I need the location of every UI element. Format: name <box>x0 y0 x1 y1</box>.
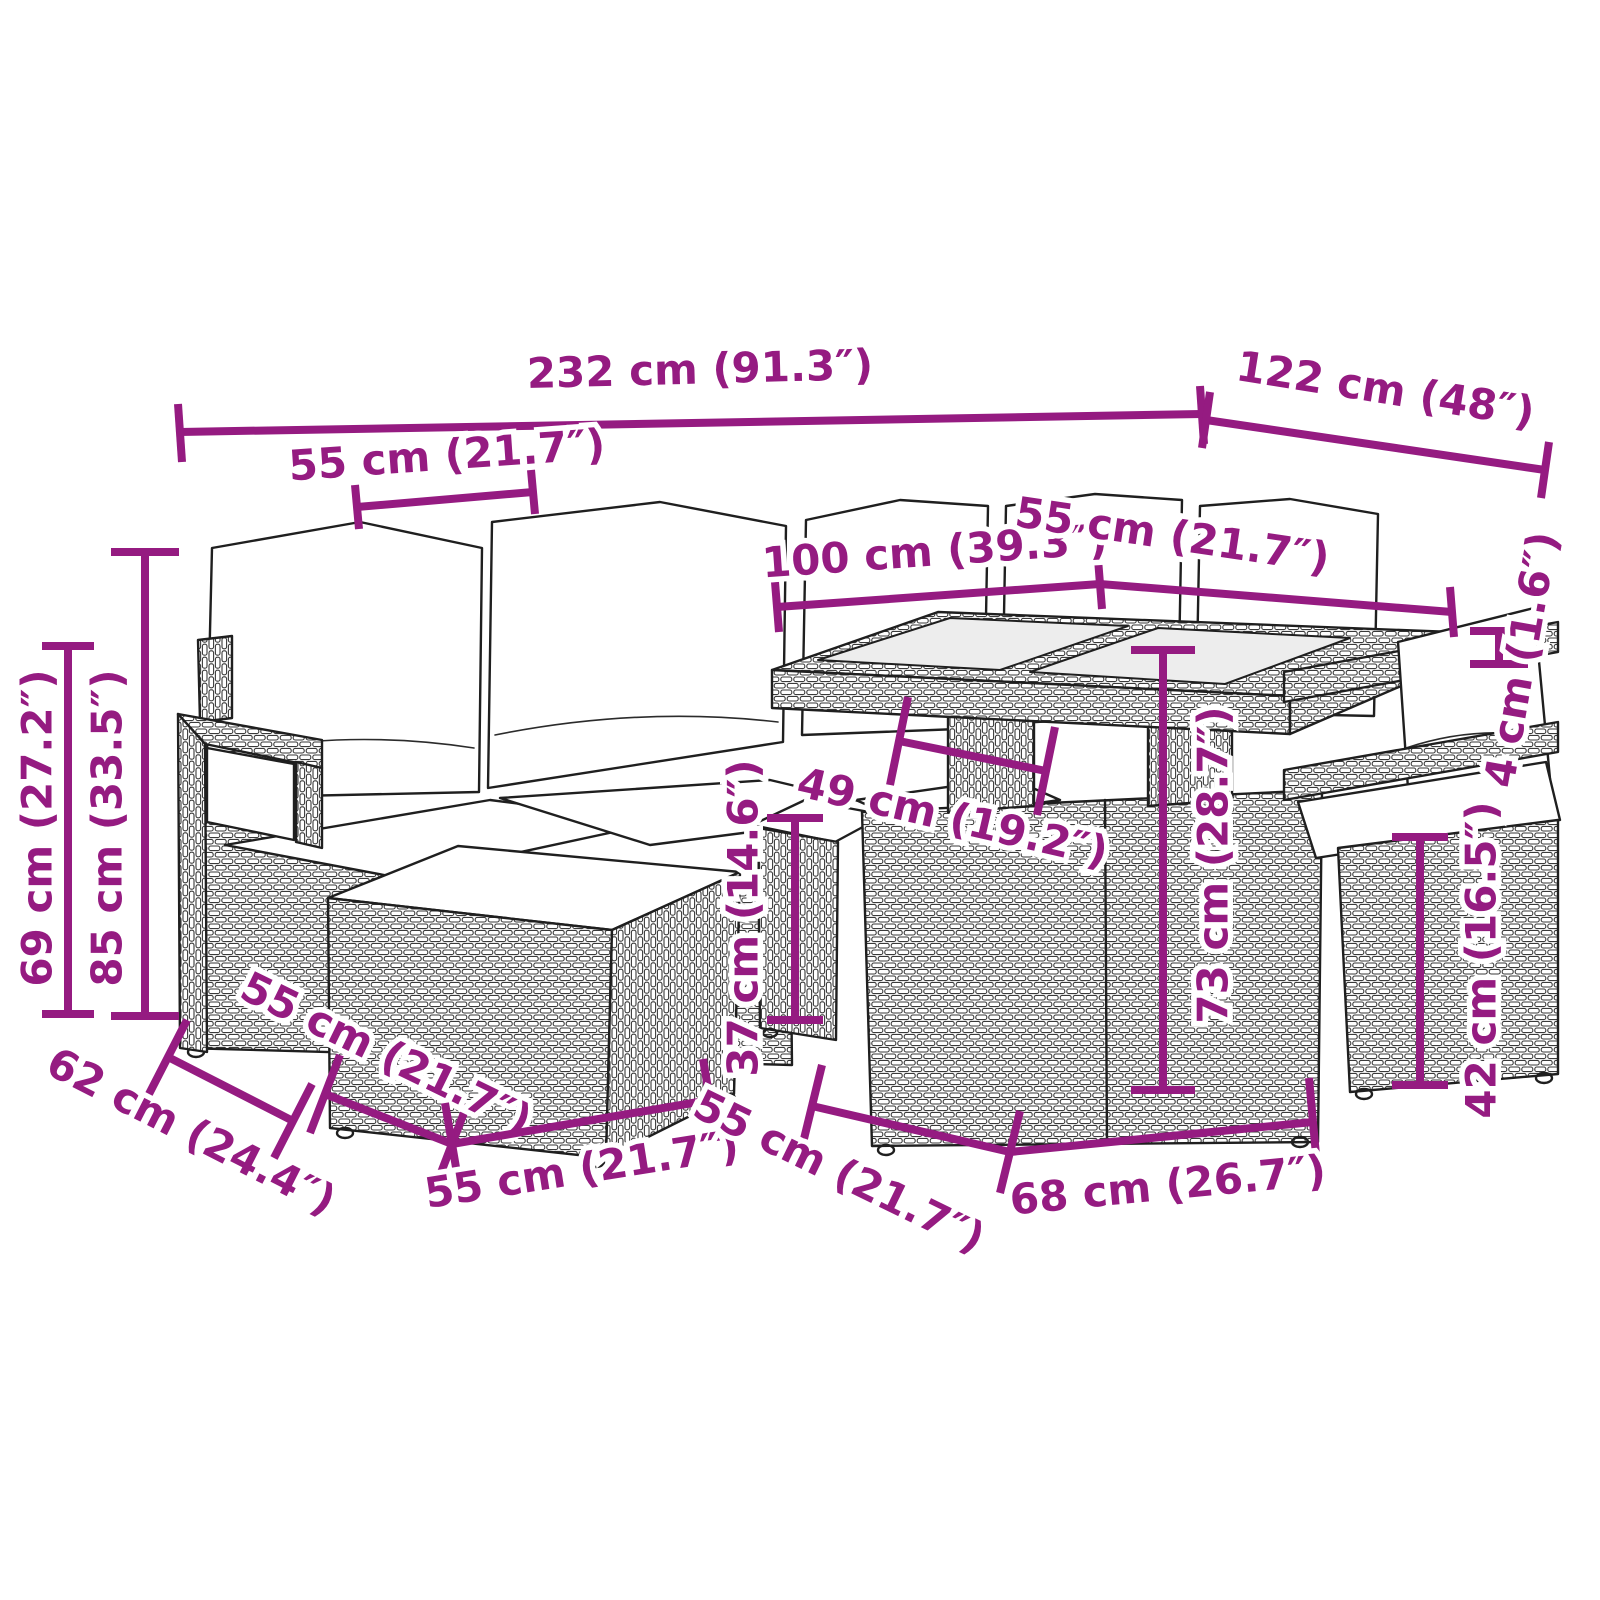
dimension-diagram: 232 cm (91.3″) 122 cm (48″) 55 cm (21.7″… <box>0 0 1600 1600</box>
dim-label-ottoman-height: 37 cm (14.6″) <box>719 759 768 1076</box>
dim-seat-width: 55 cm (21.7″) <box>287 420 607 529</box>
dim-label-overall-width: 232 cm (91.3″) <box>526 340 874 398</box>
dim-label-armrest-height: 69 cm (27.2″) <box>13 669 62 986</box>
dim-overall-depth: 122 cm (48″) <box>1202 341 1549 498</box>
front-cube-stool <box>1338 820 1558 1092</box>
dim-label-stool-width: 68 cm (26.7″) <box>1008 1145 1328 1224</box>
dim-label-overall-depth: 122 cm (48″) <box>1233 341 1538 437</box>
dim-label-table-height: 73 cm (28.7″) <box>1189 706 1238 1023</box>
diagram-canvas: 232 cm (91.3″) 122 cm (48″) 55 cm (21.7″… <box>0 0 1600 1600</box>
dim-label-back-height: 85 cm (33.5″) <box>83 669 132 986</box>
dim-label-stool-height: 42 cm (16.5″) <box>1457 801 1506 1118</box>
dim-back-height: 85 cm (33.5″) <box>83 552 180 1016</box>
